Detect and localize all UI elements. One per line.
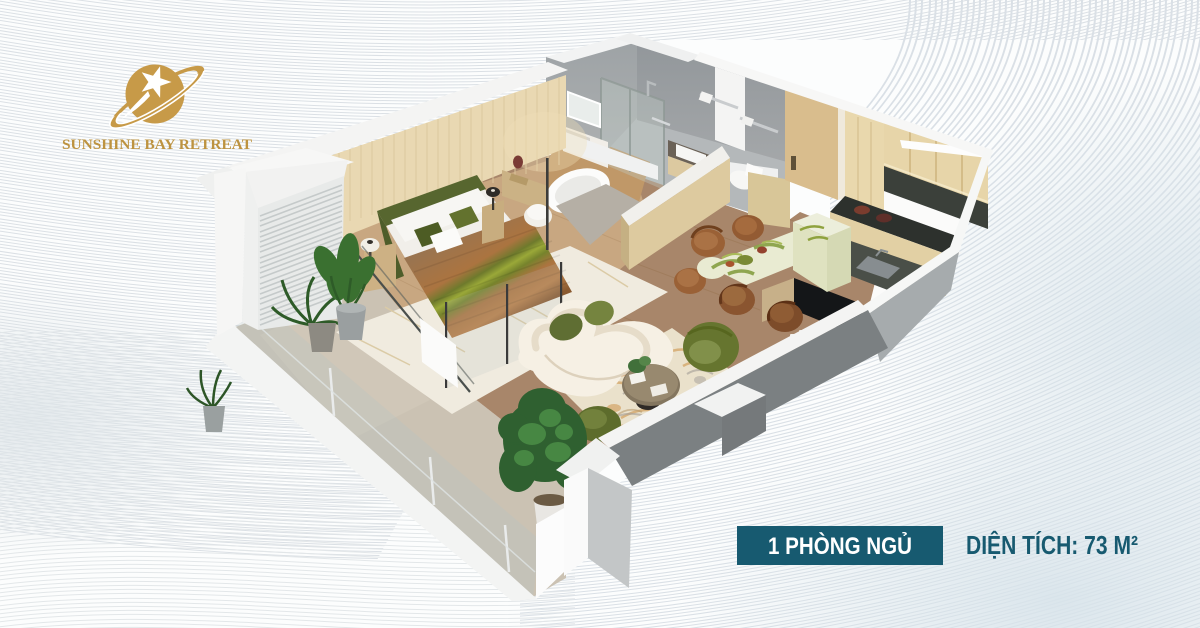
svg-text:SUNSHINE BAY RETREAT: SUNSHINE BAY RETREAT [62,137,252,153]
svg-text:1 PHÒNG NGỦ: 1 PHÒNG NGỦ [768,531,912,560]
svg-text:DIỆN TÍCH: 73 M²: DIỆN TÍCH: 73 M² [966,530,1138,560]
